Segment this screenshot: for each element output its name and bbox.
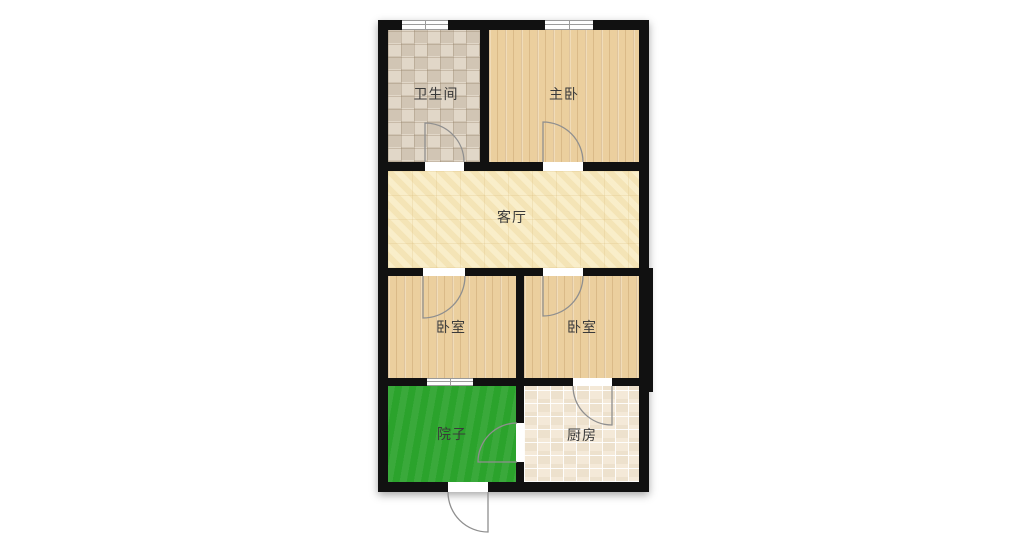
room-label-living-room: 客厅 (497, 207, 527, 227)
bedroom-left-door-icon (423, 276, 465, 318)
room-label-master-bedroom: 主卧 (549, 84, 579, 104)
yard-exterior-door-icon (448, 492, 488, 532)
room-label-bedroom-right: 卧室 (567, 317, 597, 337)
room-label-bedroom-left: 卧室 (436, 317, 466, 337)
bedroom-right-door-icon (543, 276, 583, 316)
kitchen-door-icon (573, 386, 612, 425)
floor-plan-canvas: 卫生间 主卧 客厅 卧室 卧室 院子 厨房 (0, 0, 1026, 540)
floor-plan: 卫生间 主卧 客厅 卧室 卧室 院子 厨房 (378, 20, 649, 492)
room-label-yard: 院子 (437, 424, 467, 444)
bathroom-door-icon (425, 123, 464, 162)
room-label-kitchen: 厨房 (567, 425, 597, 445)
room-label-bathroom: 卫生间 (414, 84, 459, 104)
master-bedroom-door-icon (543, 122, 583, 162)
yard-kitchen-door-icon (478, 423, 517, 462)
